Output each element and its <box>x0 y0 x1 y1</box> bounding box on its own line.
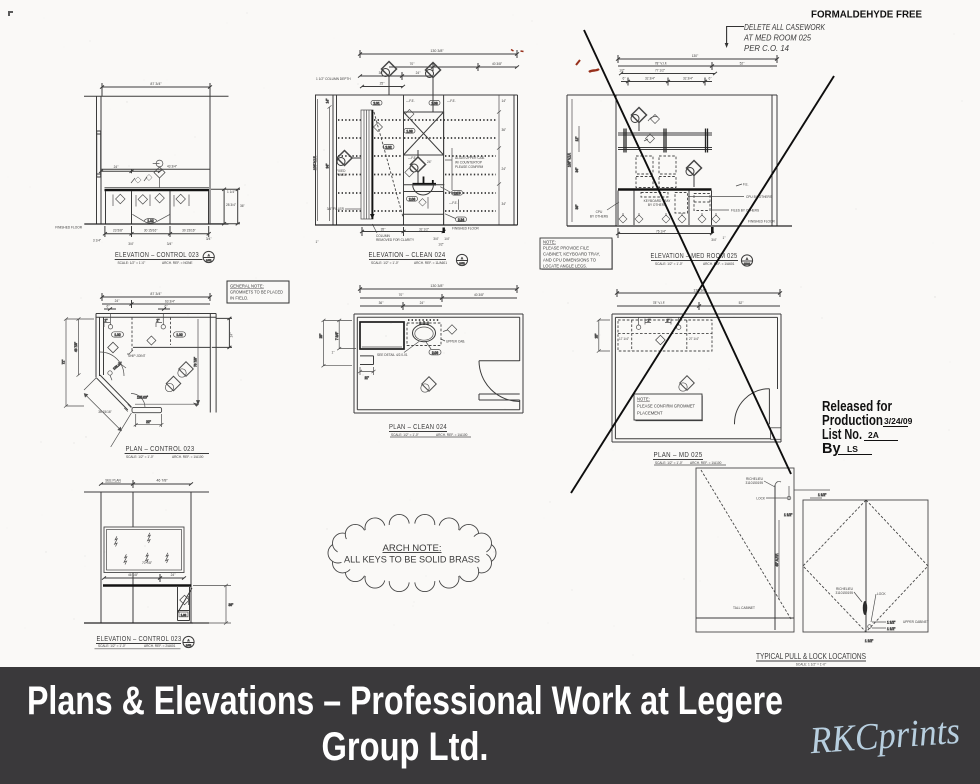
svg-text:ARCH. REF. = 11/A601: ARCH. REF. = 11/A601 <box>414 261 447 265</box>
svg-text:36": 36" <box>502 128 507 132</box>
svg-text:108" V.I.F.: 108" V.I.F. <box>313 156 317 170</box>
svg-text:CPU: CPU <box>596 210 603 214</box>
svg-text:SCALE: 1/2" = 1'-0": SCALE: 1/2" = 1'-0" <box>371 261 399 265</box>
svg-text:1/2": 1/2" <box>438 243 444 247</box>
svg-text:11": 11" <box>364 376 368 380</box>
svg-text:LOCK: LOCK <box>756 497 766 501</box>
svg-text:87 3/4": 87 3/4" <box>150 82 162 86</box>
svg-text:36": 36" <box>379 301 384 305</box>
svg-text:130 3/8": 130 3/8" <box>430 284 444 288</box>
svg-text:70 7/8": 70 7/8" <box>142 561 152 565</box>
svg-text:PLEASE CONFIRM: PLEASE CONFIRM <box>455 165 484 169</box>
svg-text:12": 12" <box>575 137 579 142</box>
svg-text:2-151: 2-151 <box>206 260 212 262</box>
svg-text:SHIP JOINT: SHIP JOINT <box>128 354 146 358</box>
svg-text:3/24/09: 3/24/09 <box>884 416 913 426</box>
svg-text:1/2": 1/2" <box>619 69 625 73</box>
svg-text:72": 72" <box>62 360 66 365</box>
svg-text:40" A.F.F.: 40" A.F.F. <box>775 553 779 566</box>
svg-text:22": 22" <box>146 420 151 424</box>
svg-text:1": 1" <box>316 240 319 244</box>
svg-text:94": 94" <box>326 164 330 169</box>
svg-text:SCALE: 1/2" = 1'-0": SCALE: 1/2" = 1'-0" <box>118 261 146 265</box>
svg-text:1": 1" <box>723 236 726 240</box>
svg-text:TALL CABINET: TALL CABINET <box>733 606 755 610</box>
svg-text:6": 6" <box>709 77 712 81</box>
svg-text:PLAN – CLEAN 024: PLAN – CLEAN 024 <box>389 422 447 431</box>
svg-text:NOTE:: NOTE: <box>637 397 650 402</box>
svg-text:CABINET, KEYBOARD TRAY,: CABINET, KEYBOARD TRAY, <box>543 252 600 257</box>
svg-text:3/4": 3/4" <box>167 242 173 246</box>
svg-text:77 1/2": 77 1/2" <box>655 69 665 73</box>
svg-text:ALL KEYS TO BE SOLID BRASS: ALL KEYS TO BE SOLID BRASS <box>344 555 480 565</box>
svg-text:135.00°: 135.00° <box>137 396 149 400</box>
svg-text:2.24: 2.24 <box>458 218 464 222</box>
svg-text:35": 35" <box>381 228 386 232</box>
svg-text:27 1/4": 27 1/4" <box>689 337 699 341</box>
svg-text:6": 6" <box>623 77 626 81</box>
svg-text:ARCH. REF. = 2/A601: ARCH. REF. = 2/A601 <box>144 644 176 648</box>
svg-text:BY OTHERS: BY OTHERS <box>590 215 608 219</box>
svg-text:SCALE: 1 1/2" = 1'-0": SCALE: 1 1/2" = 1'-0" <box>796 663 826 667</box>
svg-text:PLAN – MD 025: PLAN – MD 025 <box>654 450 703 459</box>
svg-text:1 1/4": 1 1/4" <box>227 190 235 194</box>
svg-text:2-151: 2-151 <box>186 645 192 647</box>
svg-text:NOTE:: NOTE: <box>543 240 556 245</box>
svg-text:GROMMETS TO BE PLACED: GROMMETS TO BE PLACED <box>230 290 283 295</box>
svg-text:1.08: 1.08 <box>406 129 412 133</box>
svg-text:24": 24" <box>115 299 120 303</box>
svg-text:3/4": 3/4" <box>128 242 134 246</box>
svg-text:PLACEMENT: PLACEMENT <box>637 411 663 416</box>
svg-text:43 3/4": 43 3/4" <box>167 165 177 169</box>
svg-text:30 15/16": 30 15/16" <box>182 229 196 233</box>
svg-text:SEE PLAN: SEE PLAN <box>105 479 121 483</box>
svg-text:87 3/4": 87 3/4" <box>150 292 162 296</box>
svg-text:1/4": 1/4" <box>444 237 450 241</box>
svg-text:2": 2" <box>648 319 651 323</box>
svg-text:25": 25" <box>319 334 323 339</box>
svg-text:PER C.O. 14: PER C.O. 14 <box>744 43 789 53</box>
svg-text:3110150195: 3110150195 <box>836 591 854 595</box>
svg-text:LS: LS <box>847 444 858 454</box>
svg-text:ARCH. REF. = NONE: ARCH. REF. = NONE <box>162 261 193 265</box>
svg-text:28 3/4": 28 3/4" <box>226 203 236 207</box>
svg-text:1 1/2": 1 1/2" <box>818 493 826 497</box>
svg-text:BY OTHERS: BY OTHERS <box>648 203 666 207</box>
svg-text:FORMALDEHYDE FREE: FORMALDEHYDE FREE <box>811 9 922 21</box>
svg-text:3/4": 3/4" <box>206 237 212 241</box>
svg-text:3/4" FILLER: 3/4" FILLER <box>327 207 345 211</box>
svg-text:24": 24" <box>230 333 234 338</box>
svg-text:—F.E.: —F.E. <box>406 99 415 103</box>
svg-text:TYPICAL PULL & LOCK LOCATIONS: TYPICAL PULL & LOCK LOCATIONS <box>756 652 866 661</box>
svg-text:30 15/16": 30 15/16" <box>144 229 158 233</box>
svg-text:24": 24" <box>420 301 425 305</box>
svg-text:40 3/8": 40 3/8" <box>474 293 484 297</box>
svg-text:1 1/2": 1 1/2" <box>887 627 895 631</box>
svg-text:PLAN – CONTROL 023: PLAN – CONTROL 023 <box>126 444 195 453</box>
svg-text:F.E.: F.E. <box>743 183 749 187</box>
svg-text:52": 52" <box>740 62 745 66</box>
svg-text:ALIGN UPPER CAB.: ALIGN UPPER CAB. <box>455 156 485 160</box>
svg-text:34": 34" <box>575 168 579 173</box>
svg-text:LOCK: LOCK <box>877 592 887 596</box>
svg-text:—F.E.: —F.E. <box>449 201 458 205</box>
svg-text:FINISHED FLOOR: FINISHED FLOOR <box>55 226 82 230</box>
svg-text:23 5/8": 23 5/8" <box>113 229 123 233</box>
svg-text:130 3/8": 130 3/8" <box>430 49 444 53</box>
svg-text:By: By <box>822 441 841 457</box>
svg-text:Group Ltd.: Group Ltd. <box>322 725 489 769</box>
svg-text:1/A601: 1/A601 <box>744 263 751 266</box>
svg-text:W/ COUNTERTOP: W/ COUNTERTOP <box>455 161 482 165</box>
svg-text:7 3/4": 7 3/4" <box>335 332 339 340</box>
svg-text:2.06: 2.06 <box>409 197 415 201</box>
svg-text:PANEL: PANEL <box>336 173 346 177</box>
svg-text:ELEVATION – CONTROL 023: ELEVATION – CONTROL 023 <box>97 634 182 643</box>
svg-text:2-151: 2-151 <box>459 263 465 265</box>
svg-text:14": 14" <box>326 99 330 104</box>
svg-text:1.32: 1.32 <box>147 219 153 223</box>
svg-text:32 3/4": 32 3/4" <box>683 77 693 81</box>
svg-text:1 1/2": 1 1/2" <box>887 621 895 625</box>
svg-text:2.06: 2.06 <box>432 351 438 355</box>
svg-text:2.02: 2.02 <box>385 145 391 149</box>
svg-text:108" V.I.F.: 108" V.I.F. <box>568 153 572 167</box>
svg-text:36 15/16": 36 15/16" <box>98 410 112 414</box>
svg-text:46 7/8": 46 7/8" <box>74 342 78 352</box>
svg-text:SCALE: 1/2" = 1'-0": SCALE: 1/2" = 1'-0" <box>391 433 419 437</box>
svg-text:UPPER CABINET: UPPER CABINET <box>903 620 929 624</box>
svg-text:36": 36" <box>240 204 245 208</box>
svg-text:2.07: 2.07 <box>454 191 460 195</box>
svg-text:70": 70" <box>399 293 404 297</box>
svg-text:24": 24" <box>427 160 432 164</box>
svg-text:78" V.I.F.: 78" V.I.F. <box>655 62 668 66</box>
svg-text:46 7/8": 46 7/8" <box>156 479 168 483</box>
svg-text:ARCH. REF. = 1/A601: ARCH. REF. = 1/A601 <box>703 262 735 266</box>
svg-text:3 1/4": 3 1/4" <box>93 239 101 243</box>
svg-text:3/4": 3/4" <box>711 238 717 242</box>
svg-text:ARCH. REF. = 1/A100: ARCH. REF. = 1/A100 <box>690 461 722 465</box>
svg-text:2": 2" <box>667 319 670 323</box>
svg-text:ARCH. REF. = 1/A100: ARCH. REF. = 1/A100 <box>172 455 204 459</box>
svg-text:78" V.I.F.: 78" V.I.F. <box>653 301 666 305</box>
svg-text:UPPER CAB.: UPPER CAB. <box>446 340 465 344</box>
svg-text:AND CPU DIMENSIONS TO: AND CPU DIMENSIONS TO <box>543 258 597 263</box>
svg-text:32 1/2": 32 1/2" <box>419 228 429 232</box>
svg-text:SCALE: 1/2" = 1'-0": SCALE: 1/2" = 1'-0" <box>655 461 683 465</box>
svg-text:24": 24" <box>502 167 507 171</box>
svg-text:1 1/2": 1 1/2" <box>784 513 792 517</box>
svg-text:PLEASE PROVIDE FILE: PLEASE PROVIDE FILE <box>543 246 589 251</box>
svg-text:REMOVED FOR CLARITY: REMOVED FOR CLARITY <box>376 238 415 242</box>
svg-text:76 1/4": 76 1/4" <box>656 230 666 234</box>
svg-text:—F.E.: —F.E. <box>447 99 456 103</box>
svg-text:52": 52" <box>739 301 744 305</box>
svg-text:36": 36" <box>229 603 234 607</box>
svg-text:ELEVATION – CLEAN 024: ELEVATION – CLEAN 024 <box>369 250 446 259</box>
svg-text:2A: 2A <box>868 430 879 440</box>
svg-text:36": 36" <box>575 205 579 210</box>
svg-text:24": 24" <box>416 71 421 75</box>
svg-text:SCALE: 1/2" = 1'-0": SCALE: 1/2" = 1'-0" <box>655 262 683 266</box>
svg-text:1 1/2": 1 1/2" <box>865 639 873 643</box>
svg-text:SCALE: 1/2" = 1'-0": SCALE: 1/2" = 1'-0" <box>98 644 126 648</box>
svg-text:1.02: 1.02 <box>176 333 182 337</box>
svg-text:70": 70" <box>410 62 415 66</box>
svg-text:63 3/4": 63 3/4" <box>165 300 175 304</box>
svg-text:LOCATE ANGLE LEGS.: LOCATE ANGLE LEGS. <box>543 264 587 269</box>
svg-text:32 3/4": 32 3/4" <box>645 77 655 81</box>
svg-text:3110150195: 3110150195 <box>746 481 764 485</box>
svg-text:25": 25" <box>594 334 598 339</box>
svg-text:17 1/4": 17 1/4" <box>619 337 629 341</box>
svg-text:1": 1" <box>332 351 335 355</box>
svg-text:24": 24" <box>171 573 176 577</box>
svg-text:IN FIELD.: IN FIELD. <box>230 296 248 301</box>
svg-text:6": 6" <box>107 305 110 309</box>
svg-text:34": 34" <box>502 202 507 206</box>
svg-text:GENERAL NOTE:: GENERAL NOTE: <box>230 284 264 289</box>
svg-text:36": 36" <box>379 71 384 75</box>
svg-text:25": 25" <box>380 82 385 86</box>
svg-text:2": 2" <box>157 319 160 323</box>
svg-text:46 1/8": 46 1/8" <box>128 573 138 577</box>
svg-text:1.08: 1.08 <box>181 613 187 617</box>
svg-text:FINISHED FLOOR: FINISHED FLOOR <box>748 220 775 224</box>
svg-text:FILES BY OTHERS: FILES BY OTHERS <box>731 209 759 213</box>
svg-text:ARCH NOTE:: ARCH NOTE: <box>383 543 442 553</box>
svg-text:DELETE ALL CASEWORK: DELETE ALL CASEWORK <box>744 22 826 32</box>
svg-text:2": 2" <box>105 319 108 323</box>
svg-text:40 3/8": 40 3/8" <box>492 62 502 66</box>
svg-text:ELEVATION – CONTROL 023: ELEVATION – CONTROL 023 <box>115 250 199 259</box>
svg-text:PLEASE CONFIRM GROMMET: PLEASE CONFIRM GROMMET <box>637 404 695 409</box>
svg-text:ELEVATION – MED ROOM 025: ELEVATION – MED ROOM 025 <box>651 251 738 260</box>
svg-text:76 7/8": 76 7/8" <box>194 357 198 367</box>
svg-text:Plans & Elevations – Professio: Plans & Elevations – Professional Work a… <box>27 679 783 723</box>
svg-text:AT MED ROOM 025: AT MED ROOM 025 <box>743 33 811 43</box>
svg-text:24": 24" <box>114 165 119 169</box>
svg-text:3/4": 3/4" <box>433 237 439 241</box>
svg-text:1.08: 1.08 <box>431 101 437 105</box>
svg-text:FINISHED FLOOR: FINISHED FLOOR <box>452 227 479 231</box>
svg-text:6": 6" <box>165 305 168 309</box>
svg-text:14": 14" <box>502 99 507 103</box>
svg-text:ARCH. REF. = 1/A100: ARCH. REF. = 1/A100 <box>436 433 468 437</box>
svg-text:SCALE: 1/2" = 1'-0": SCALE: 1/2" = 1'-0" <box>126 455 154 459</box>
svg-text:1 1/2" COLUMN DEPTH: 1 1/2" COLUMN DEPTH <box>316 77 351 81</box>
svg-text:SEE DETAIL 4/2.0-01: SEE DETAIL 4/2.0-01 <box>377 353 408 357</box>
svg-text:130": 130" <box>692 54 698 58</box>
svg-text:2.01: 2.01 <box>373 101 379 105</box>
svg-text:1.02: 1.02 <box>114 333 120 337</box>
